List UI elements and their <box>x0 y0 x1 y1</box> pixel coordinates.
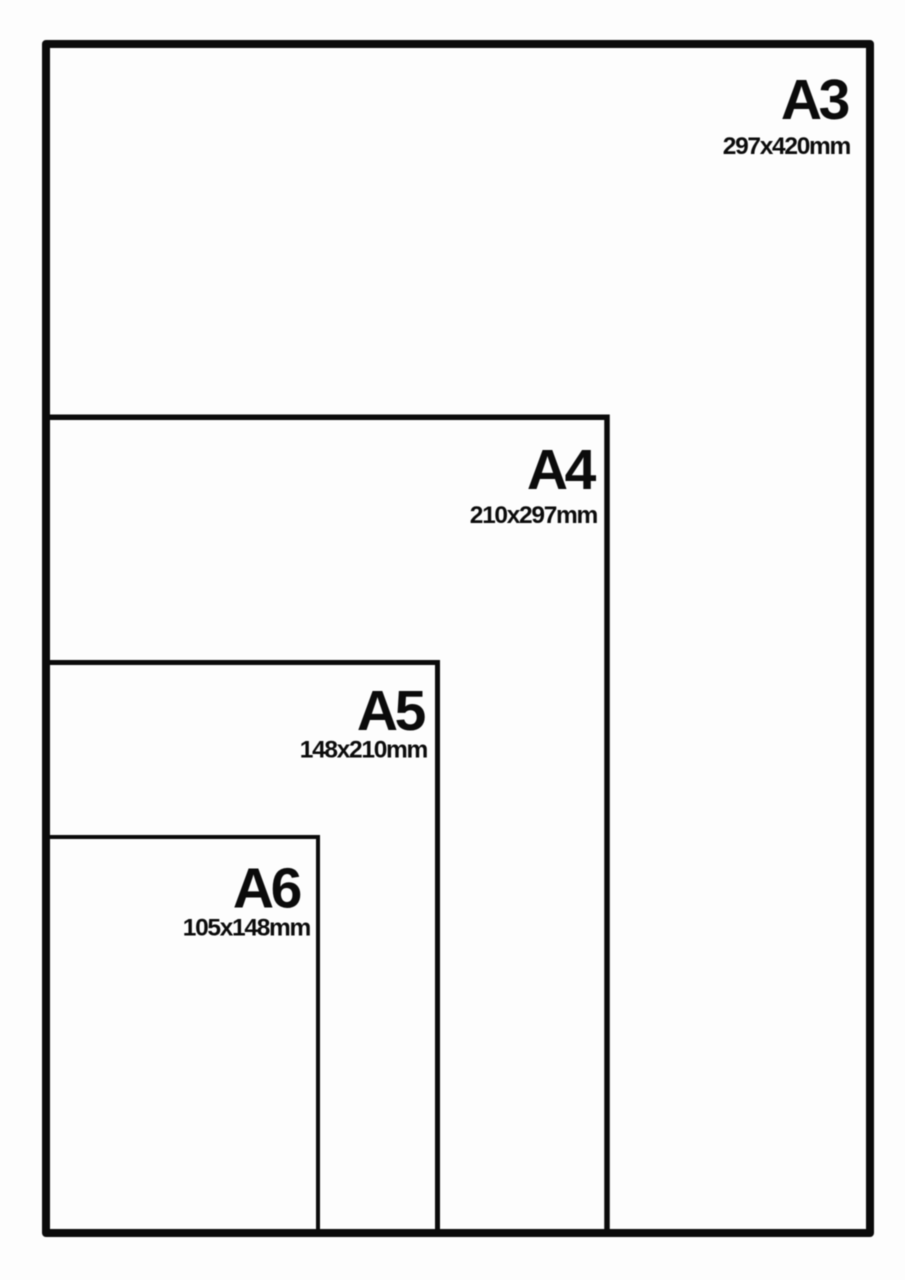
svg-text:297x420mm: 297x420mm <box>723 133 851 160</box>
svg-text:148x210mm: 148x210mm <box>300 737 428 764</box>
svg-text:105x148mm: 105x148mm <box>183 915 311 942</box>
svg-text:A3: A3 <box>781 68 849 132</box>
svg-text:A6: A6 <box>233 857 301 921</box>
svg-text:A4: A4 <box>527 438 597 502</box>
svg-text:A5: A5 <box>357 679 426 743</box>
svg-text:210x297mm: 210x297mm <box>470 502 598 529</box>
